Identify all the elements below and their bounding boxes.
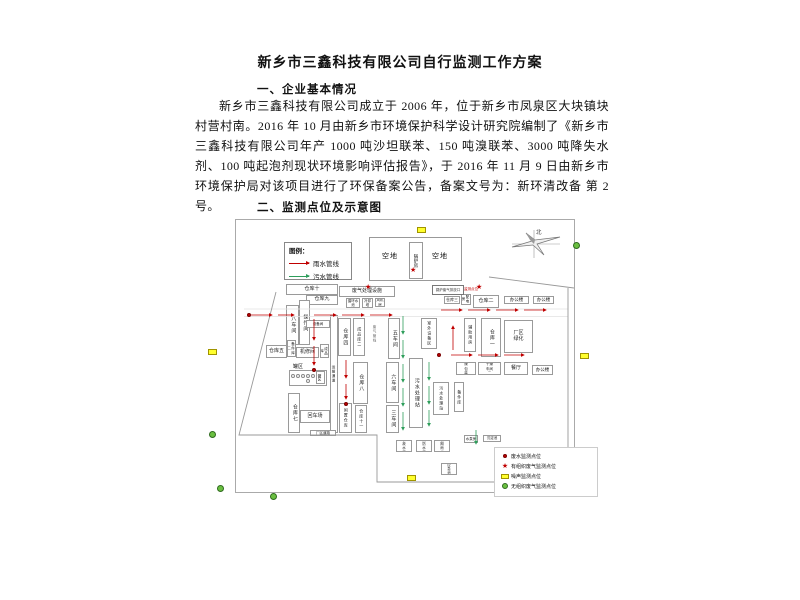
building-ck11: 仓库十一 <box>355 405 367 433</box>
legend-icon-cell <box>499 483 511 489</box>
building-cpk2: 成品库二 <box>353 318 365 356</box>
building-hcc: 回车场 <box>300 410 330 423</box>
building-ck8: 仓库八 <box>353 362 368 404</box>
pipeline-legend: 图例： 雨水管线 污水管线 <box>284 242 352 280</box>
building-ck7: 仓库七 <box>288 393 300 433</box>
building-cj3: 三车间 <box>386 405 399 433</box>
wastewater-point-icon <box>437 353 441 357</box>
organized-gas-legend-label: 有组织废气监测点位 <box>511 463 556 470</box>
organized-gas-marker-icon: ★ <box>410 267 416 274</box>
tank-area-sub-label: 罐区 <box>316 371 325 384</box>
building-bjk1: 备件库 <box>454 382 464 412</box>
organized-gas-marker-icon: ★ <box>365 284 371 291</box>
tank-icon <box>306 379 310 383</box>
open-space-block: 空地 锅炉房 空地 <box>369 237 462 281</box>
building-xzck: 闲置仓库 <box>339 403 352 433</box>
building-gzbzj: 干燥包装间 <box>456 362 476 375</box>
noise-marker-icon <box>580 353 589 359</box>
legend-icon-cell <box>499 454 511 458</box>
building-cj5: 五车间 <box>388 318 400 359</box>
building-xfsc: 消防水池 <box>416 440 432 452</box>
tank-icon <box>296 374 300 378</box>
organized-gas-point-icon: ★ <box>502 463 508 470</box>
fugitive-gas-marker-icon <box>217 485 224 492</box>
building-bgl3: 办公楼 <box>532 365 553 375</box>
building-ck9: 仓库九 <box>306 295 338 305</box>
wastewater-point-icon <box>503 454 507 458</box>
tank-icon <box>301 374 305 378</box>
building-cpk: 成品库 <box>320 344 329 358</box>
sewage-pipeline-legend-row: 污水管线 <box>289 271 347 281</box>
building-ck1: 仓库一 <box>481 318 501 357</box>
building-bgl2: 办公楼 <box>533 296 554 304</box>
building-cqys: 初期雨水 <box>434 440 450 452</box>
noise-legend-label: 噪声监测点位 <box>511 473 541 480</box>
tank-icon <box>306 374 310 378</box>
building-lqt: 冷却塔 <box>362 298 373 308</box>
compass: 北 <box>508 228 564 260</box>
rain-pipeline-arrow-icon <box>289 263 309 264</box>
stack-outlet-note: 锅炉废气排放口 <box>432 285 464 295</box>
building-ck3: 仓库三 <box>444 296 460 304</box>
building-fjf: 风机房 <box>375 298 385 307</box>
legend-row-fugitive-gas: 无组织废气监测点位 <box>499 481 593 491</box>
building-cdc: 沉淀池 <box>483 435 501 442</box>
section-heading-1: 一、企业基本情况 <box>257 81 357 97</box>
building-cj6: 六车间 <box>386 362 399 403</box>
legend-row-wastewater: 废水监测点位 <box>499 451 593 461</box>
building-cqdl: 厂区道路 <box>310 430 336 436</box>
rain-pipeline-label: 雨水管线 <box>313 258 339 268</box>
building-bjk2: 备件库二 <box>287 340 296 357</box>
sewage-pipeline-arrow-icon <box>289 276 309 277</box>
noise-marker-icon <box>208 349 217 355</box>
tank-icon <box>291 374 295 378</box>
legend-row-noise: 噪声监测点位 <box>499 471 593 481</box>
building-fzyf: 辅助用房 <box>464 318 476 352</box>
fugitive-gas-marker-icon <box>573 242 580 249</box>
open-space-right-label: 空地 <box>432 251 448 261</box>
noise-marker-icon <box>417 227 426 233</box>
pipeline-legend-title: 图例： <box>289 245 347 255</box>
noise-point-icon <box>501 474 509 479</box>
fugitive-gas-legend-label: 无组织废气监测点位 <box>511 483 556 490</box>
building-ck5: 仓库五 <box>266 345 287 358</box>
building-wsclz2: 污水处理站 <box>433 382 449 415</box>
legend-icon-cell: ★ <box>499 463 511 470</box>
building-pdf: 配电房 <box>461 294 471 305</box>
building-ct: 餐厅 <box>504 362 528 375</box>
organized-gas-marker-icon: ★ <box>476 284 482 291</box>
rain-pipeline-legend-row: 雨水管线 <box>289 258 347 268</box>
page-title: 新乡市三鑫科技有限公司自行监测工作方案 <box>0 52 800 72</box>
wastewater-legend-label: 废水监测点位 <box>511 453 541 460</box>
building-fqgx: 废气管线 <box>371 320 379 348</box>
building-bgl1: 办公楼 <box>504 296 529 304</box>
section-heading-2: 二、监测点位及示意图 <box>257 199 382 215</box>
building-jxj: 机修间 <box>296 347 319 358</box>
sewage-pipeline-label: 污水管线 <box>313 271 339 281</box>
wastewater-point-icon <box>247 313 251 317</box>
open-space-left-label: 空地 <box>382 251 398 261</box>
document-page: 新乡市三鑫科技有限公司自行监测工作方案 一、企业基本情况 新乡市三鑫科技有限公司… <box>0 0 800 600</box>
building-sbj1: 设备间 <box>306 320 330 328</box>
building-cj8: 八车间 <box>286 305 299 345</box>
building-ck10: 仓库十 <box>286 284 338 295</box>
building-cqlh: 厂区绿化 <box>504 320 533 353</box>
building-ysld: 运输通道 <box>330 315 338 433</box>
tank-area-label: 罐区 <box>293 363 303 370</box>
wastewater-point-icon <box>312 368 316 372</box>
legend-row-organized-gas: ★ 有组织废气监测点位 <box>499 461 593 471</box>
building-sbf: 水泵房 <box>464 435 478 443</box>
fugitive-gas-marker-icon <box>209 431 216 438</box>
building-gzcj2: 干燥车间二 <box>478 362 501 375</box>
body-paragraph: 新乡市三鑫科技有限公司成立于 2006 年，位于新乡市凤泉区大块镇块村营村南。2… <box>195 96 609 216</box>
fugitive-gas-marker-icon <box>270 493 277 500</box>
building-swsbq: 室外设备区 <box>421 318 437 349</box>
wastewater-point-icon <box>344 402 348 406</box>
building-sgsc: 事故水池 <box>396 440 412 452</box>
building-ck4: 仓库四 <box>338 318 351 356</box>
legend-icon-cell <box>499 474 511 479</box>
compass-north-label: 北 <box>536 228 542 236</box>
building-xhsc: 循环水池 <box>346 298 360 308</box>
building-yjc: 应急池 <box>441 463 457 475</box>
fugitive-gas-point-icon <box>502 483 508 489</box>
tank-icon <box>311 374 315 378</box>
monitoring-point-legend: 废水监测点位 ★ 有组织废气监测点位 噪声监测点位 无组织废气监测点位 <box>494 447 598 497</box>
building-wsclz1: 污水处理站 <box>409 358 423 428</box>
noise-marker-icon <box>407 475 416 481</box>
building-ck2: 仓库二 <box>473 295 499 308</box>
